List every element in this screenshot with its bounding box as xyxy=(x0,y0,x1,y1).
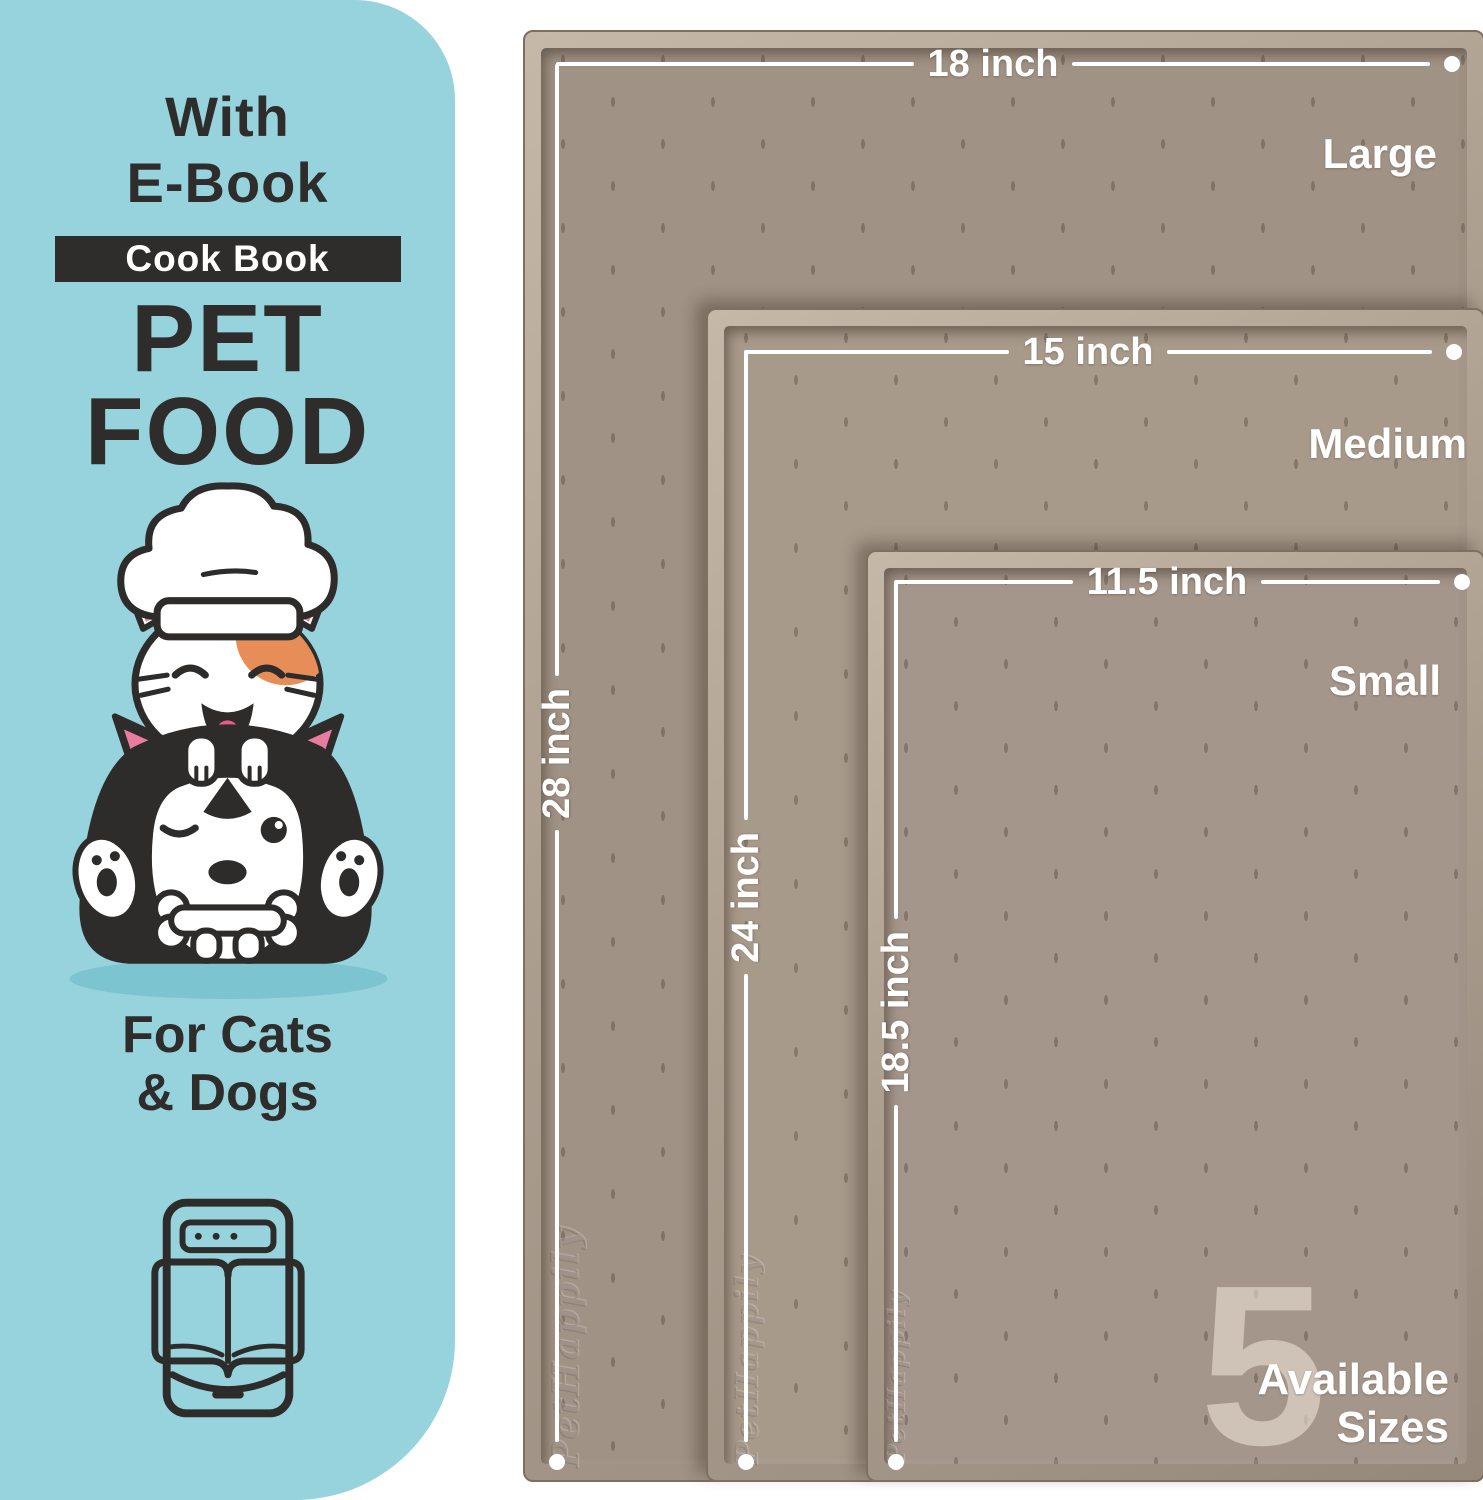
size-name-large: Large xyxy=(1323,130,1437,178)
available-sizes-line1: Available xyxy=(1257,1356,1449,1404)
cookbook-badge-label: Cook Book xyxy=(125,238,329,280)
info-panel: With E-Book Cook Book PET FOOD xyxy=(0,0,455,1500)
chef-cat-and-dog-illustration xyxy=(33,478,423,1006)
height-measure-small: 18.5 inch xyxy=(887,582,905,1470)
measure-line-segment xyxy=(894,1105,898,1442)
measure-line-segment xyxy=(744,352,748,820)
available-sizes-text: Available Sizes xyxy=(1257,1356,1449,1453)
pet-food-title-line1: PET xyxy=(0,292,455,385)
measure-line-segment xyxy=(894,580,1073,584)
ground-shadow xyxy=(70,959,388,999)
width-label-large: 18 inch xyxy=(928,43,1059,86)
measure-line-segment xyxy=(555,64,559,676)
measure-line-segment xyxy=(555,830,559,1442)
ebook-heading: With E-Book xyxy=(0,0,455,216)
height-label-small: 18.5 inch xyxy=(875,931,918,1094)
available-sizes-line2: Sizes xyxy=(1257,1404,1449,1452)
chef-hat xyxy=(121,486,334,637)
size-name-small: Small xyxy=(1329,657,1441,705)
measure-endpoint-dot xyxy=(1446,344,1462,360)
height-measure-medium: 24 inch xyxy=(737,352,755,1470)
measure-line-segment xyxy=(744,974,748,1442)
ebook-heading-line1: With xyxy=(0,84,455,150)
measure-line-segment xyxy=(1167,350,1432,354)
for-cats-dogs-line1: For Cats xyxy=(0,1006,455,1064)
ebook-heading-line2: E-Book xyxy=(0,150,455,216)
width-label-medium: 15 inch xyxy=(1023,331,1154,374)
width-label-small: 11.5 inch xyxy=(1087,561,1248,604)
measure-line-segment xyxy=(1072,62,1430,66)
measure-line-segment xyxy=(556,62,914,66)
measure-endpoint-dot xyxy=(738,1454,754,1470)
measure-line-segment xyxy=(894,582,898,919)
measure-endpoint-dot xyxy=(888,1454,904,1470)
pet-food-title: PET FOOD xyxy=(0,292,455,478)
measure-endpoint-dot xyxy=(1444,56,1460,72)
for-cats-dogs-text: For Cats & Dogs xyxy=(0,1006,455,1122)
height-measure-large: 28 inch xyxy=(548,64,566,1470)
height-label-medium: 24 inch xyxy=(725,832,768,963)
width-measure-medium: 15 inch xyxy=(744,344,1462,360)
measure-line-segment xyxy=(1261,580,1440,584)
size-name-medium: Medium xyxy=(1308,420,1467,468)
width-measure-large: 18 inch xyxy=(556,56,1460,72)
measure-endpoint-dot xyxy=(549,1454,565,1470)
pet-food-title-line2: FOOD xyxy=(0,385,455,478)
measure-endpoint-dot xyxy=(1454,574,1470,590)
ebook-tablet-icon xyxy=(139,1196,317,1420)
height-label-large: 28 inch xyxy=(536,688,579,819)
product-image: With E-Book Cook Book PET FOOD xyxy=(0,0,1483,1500)
for-cats-dogs-line2: & Dogs xyxy=(0,1064,455,1122)
width-measure-small: 11.5 inch xyxy=(894,574,1470,590)
measure-line-segment xyxy=(744,350,1009,354)
cookbook-badge: Cook Book xyxy=(55,236,401,282)
